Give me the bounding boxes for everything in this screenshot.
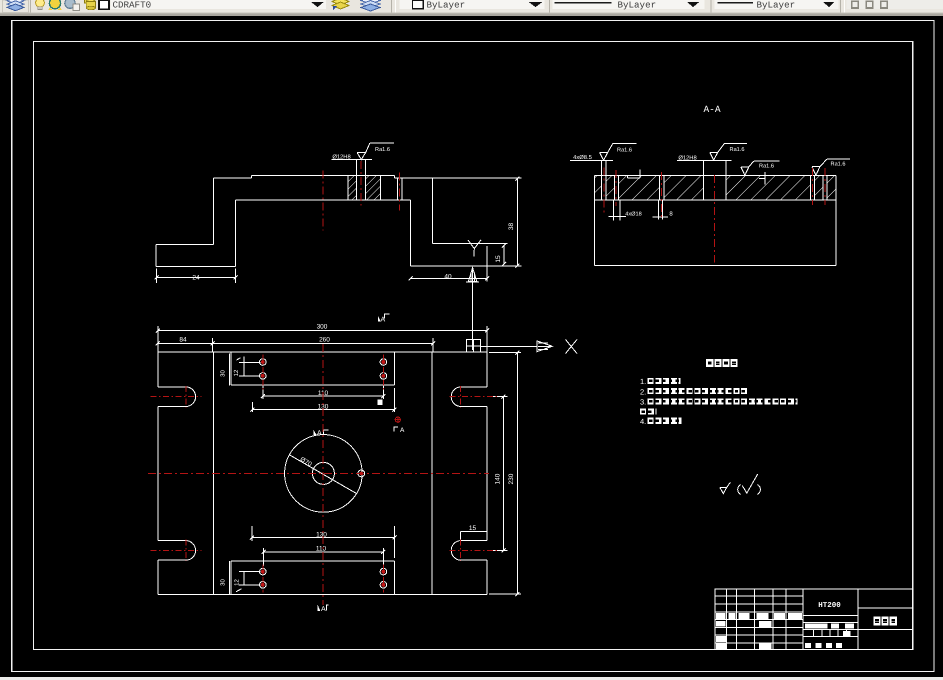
svg-text:HT200: HT200 [818, 601, 841, 610]
svg-text:260: 260 [319, 337, 330, 344]
svg-text:4.: 4. [640, 417, 646, 426]
svg-text:2.: 2. [640, 387, 646, 396]
svg-text:130: 130 [316, 531, 327, 538]
svg-text:Ra1.6: Ra1.6 [617, 147, 632, 153]
svg-text:38: 38 [508, 223, 515, 231]
svg-text:12: 12 [233, 369, 240, 376]
svg-text:Ra1.6: Ra1.6 [759, 163, 774, 169]
svg-text:Ra1.6: Ra1.6 [730, 147, 745, 153]
svg-text:ByLayer: ByLayer [757, 0, 796, 11]
svg-text:12: 12 [234, 579, 241, 586]
svg-text:Ø12H8: Ø12H8 [332, 153, 350, 160]
svg-text:140: 140 [495, 473, 502, 484]
svg-text:110: 110 [316, 546, 327, 553]
svg-text:Ø12H8: Ø12H8 [678, 154, 696, 161]
svg-text:3.: 3. [640, 398, 646, 407]
svg-text:84: 84 [179, 337, 187, 344]
svg-text:CDRAFT0: CDRAFT0 [113, 0, 152, 11]
svg-text:4xØ8.5: 4xØ8.5 [573, 154, 592, 161]
svg-text:4xØ18: 4xØ18 [625, 212, 641, 218]
svg-text:30: 30 [220, 579, 227, 586]
svg-text:24: 24 [192, 275, 200, 282]
svg-text:230: 230 [508, 473, 515, 484]
svg-text:Ra1.6: Ra1.6 [375, 147, 390, 153]
svg-text:Ra1.6: Ra1.6 [831, 162, 846, 168]
svg-text:ByLayer: ByLayer [427, 0, 466, 11]
svg-text:15: 15 [469, 525, 477, 532]
svg-text:1.: 1. [640, 377, 646, 386]
svg-text:A: A [321, 606, 326, 613]
svg-text:A: A [400, 427, 405, 434]
svg-text:ByLayer: ByLayer [618, 0, 657, 11]
svg-text:A-A: A-A [703, 104, 720, 115]
svg-text:30: 30 [220, 370, 227, 377]
svg-text:40: 40 [444, 273, 452, 280]
svg-text:A: A [317, 430, 322, 437]
svg-text:300: 300 [317, 324, 328, 331]
svg-text:15: 15 [495, 255, 502, 263]
